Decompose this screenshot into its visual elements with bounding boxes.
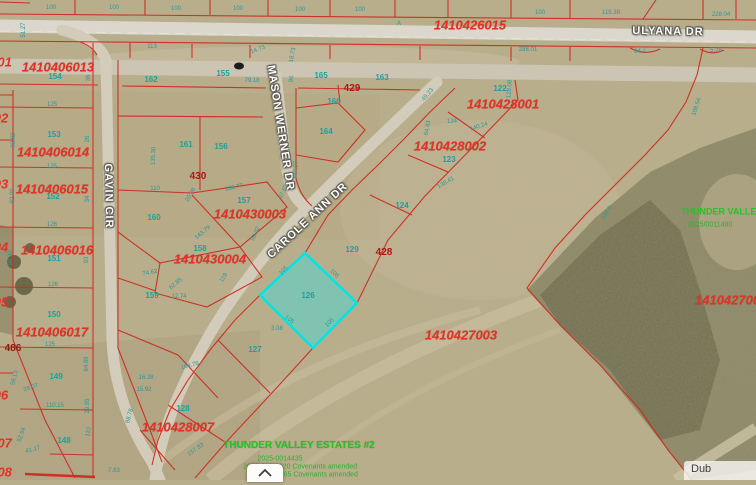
car-on-road [234, 63, 244, 70]
expand-panel-button[interactable] [247, 464, 283, 482]
map-attribution: Dub [684, 461, 756, 480]
chevron-up-icon [258, 469, 272, 477]
aerial-map-graphic [0, 0, 756, 480]
attribution-text: Dub [691, 463, 711, 475]
parcel-map-viewer: { "map": { "description": "County GIS ae… [0, 0, 756, 480]
map-canvas[interactable] [0, 0, 756, 480]
road-frontage [0, 66, 756, 75]
